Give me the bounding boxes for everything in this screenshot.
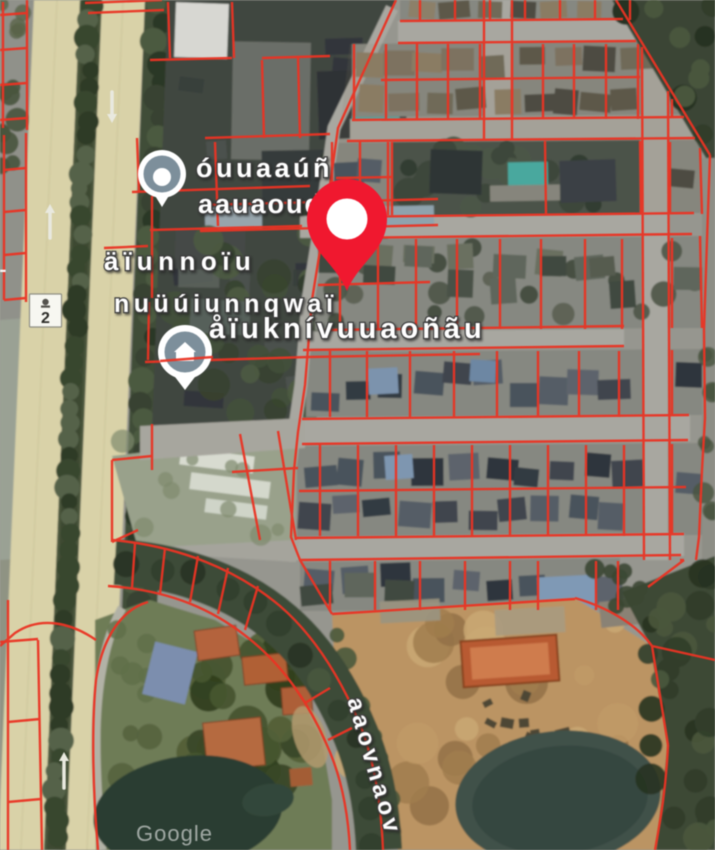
svg-text:óuuaaúñ: óuuaaúñ [196,153,333,183]
svg-text:L: L [0,255,6,277]
svg-text:2: 2 [41,310,50,327]
svg-text:Google: Google [136,821,213,846]
svg-text:äïunnoïu: äïunnoïu [104,246,256,276]
svg-text:åïuknívuuaoñãu: åïuknívuuaoñãu [209,313,486,345]
